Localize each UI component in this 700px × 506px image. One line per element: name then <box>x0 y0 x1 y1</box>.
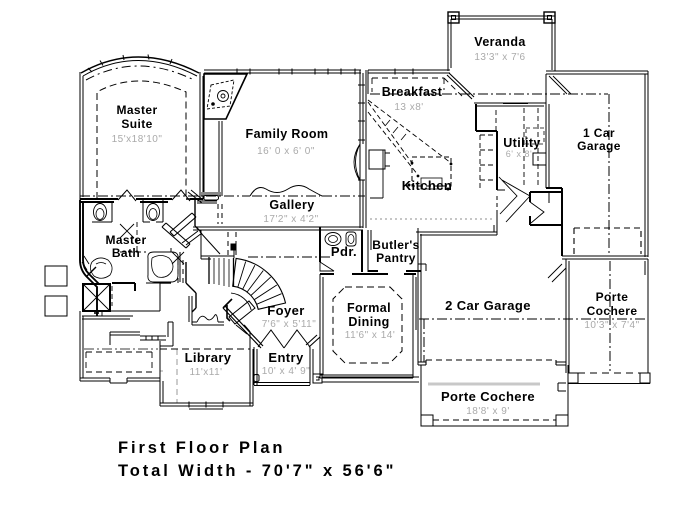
svg-text:Bath: Bath <box>112 246 140 260</box>
svg-text:Suite: Suite <box>121 117 152 131</box>
svg-text:Dining: Dining <box>348 315 389 329</box>
svg-text:Entry: Entry <box>268 350 304 365</box>
svg-text:Family Room: Family Room <box>246 127 329 141</box>
svg-text:Breakfast: Breakfast <box>382 85 443 99</box>
svg-text:2 Car Garage: 2 Car Garage <box>445 298 531 313</box>
svg-text:Master: Master <box>116 103 157 117</box>
svg-text:Foyer: Foyer <box>267 303 304 318</box>
svg-text:Total Width - 70'7" x 56'6": Total Width - 70'7" x 56'6" <box>118 462 396 480</box>
svg-text:Pdr.: Pdr. <box>331 244 357 259</box>
svg-text:16' 0 x 6' 0": 16' 0 x 6' 0" <box>257 146 315 157</box>
svg-text:Butler's: Butler's <box>372 238 419 252</box>
svg-text:10' x 4' 9": 10' x 4' 9" <box>262 366 310 377</box>
svg-text:1 Car: 1 Car <box>583 126 615 140</box>
svg-text:First Floor Plan: First Floor Plan <box>118 439 285 457</box>
svg-text:18'8' x 9': 18'8' x 9' <box>466 406 510 417</box>
svg-text:Porte Cochere: Porte Cochere <box>441 389 535 404</box>
svg-text:Library: Library <box>185 350 232 365</box>
svg-text:Garage: Garage <box>577 139 621 153</box>
svg-text:Pantry: Pantry <box>376 251 416 265</box>
svg-text:11'x11': 11'x11' <box>189 367 222 378</box>
svg-text:Veranda: Veranda <box>474 35 526 49</box>
svg-text:Porte: Porte <box>596 290 629 304</box>
svg-text:Formal: Formal <box>347 301 391 315</box>
svg-text:10'3" x 7'4": 10'3" x 7'4" <box>584 320 639 331</box>
svg-text:6' x 8': 6' x 8' <box>506 149 532 159</box>
svg-text:Gallery: Gallery <box>269 198 314 212</box>
svg-text:13 x8': 13 x8' <box>394 102 423 113</box>
svg-text:7'6" x 5'11": 7'6" x 5'11" <box>262 319 317 330</box>
svg-text:11'6" x 14': 11'6" x 14' <box>345 330 396 341</box>
svg-text:Cochere: Cochere <box>587 304 638 318</box>
svg-text:17'2" x 4'2": 17'2" x 4'2" <box>263 214 318 225</box>
svg-text:15'x18'10": 15'x18'10" <box>112 134 163 145</box>
svg-text:13'3" x 7'6: 13'3" x 7'6 <box>474 52 525 63</box>
svg-text:Master: Master <box>105 233 146 247</box>
svg-text:Utility: Utility <box>503 136 541 150</box>
